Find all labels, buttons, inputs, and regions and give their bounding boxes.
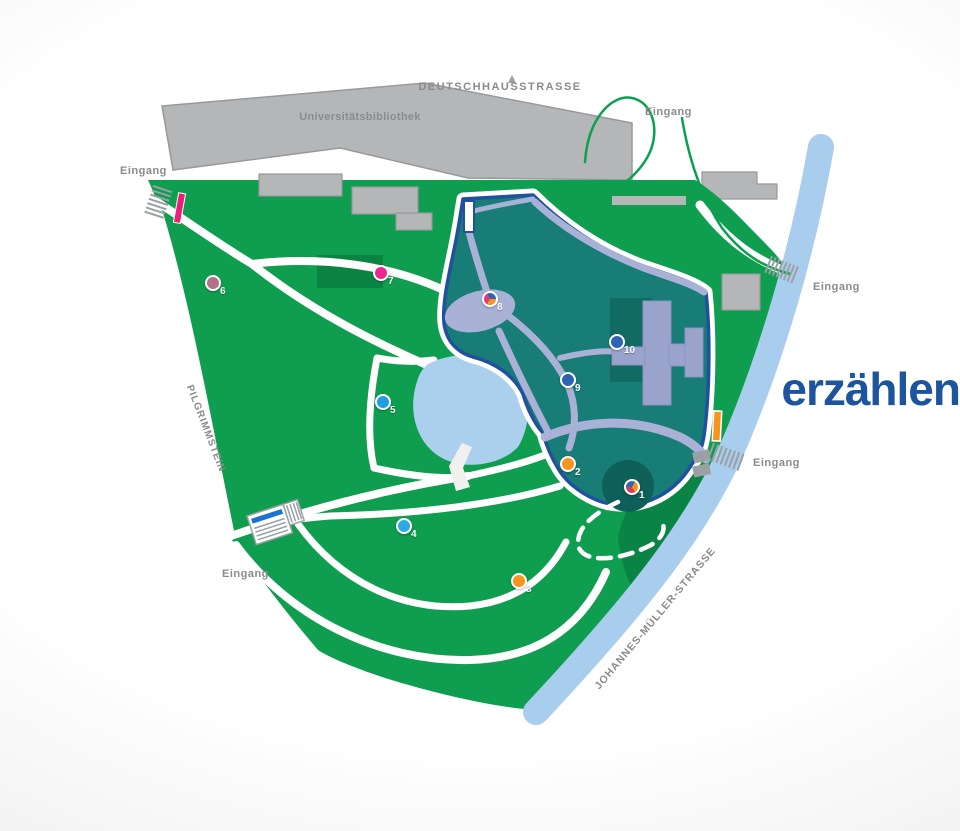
overlay-word: erzählen: [781, 364, 960, 415]
entrance-label-right-middle: Eingang: [753, 457, 800, 469]
entrance-label-right-upper: Eingang: [813, 281, 860, 293]
entrance-label-top-left: Eingang: [120, 165, 167, 177]
marker-2[interactable]: 2: [560, 456, 576, 472]
zone-marker-white: [464, 201, 474, 232]
map-canvas: [0, 0, 960, 831]
marker-number: 7: [388, 276, 394, 287]
entrance-label-bottom-left: Eingang: [222, 568, 269, 580]
building-top-1: [259, 174, 342, 196]
entrance-label-top-right: Eingang: [645, 106, 692, 118]
marker-number: 2: [575, 467, 581, 478]
entrance-marker-orange: [712, 411, 722, 441]
marker-number: 10: [624, 345, 635, 356]
marker-10[interactable]: 10: [609, 334, 625, 350]
marker-7[interactable]: 7: [373, 265, 389, 281]
marker-3[interactable]: 3: [511, 573, 527, 589]
street-label-top: DEUTSCHHAUSSTRASSE: [400, 81, 600, 93]
building-right: [722, 274, 760, 310]
marker-9[interactable]: 9: [560, 372, 576, 388]
library-label: Universitätsbibliothek: [250, 111, 470, 123]
marker-6[interactable]: 6: [205, 275, 221, 291]
marker-number: 6: [220, 286, 226, 297]
park-map: DEUTSCHHAUSSTRASSE Universitätsbibliothe…: [0, 0, 960, 831]
marker-number: 3: [526, 584, 532, 595]
marker-number: 8: [497, 302, 503, 313]
marker-number: 1: [639, 490, 645, 501]
marker-8[interactable]: 8: [482, 291, 498, 307]
marker-4[interactable]: 4: [396, 518, 412, 534]
building-strip: [612, 196, 686, 205]
marker-number: 4: [411, 529, 417, 540]
marker-number: 5: [390, 405, 396, 416]
marker-number: 9: [575, 383, 581, 394]
marker-1[interactable]: 1: [624, 479, 640, 495]
marker-5[interactable]: 5: [375, 394, 391, 410]
library-building: [162, 83, 632, 180]
